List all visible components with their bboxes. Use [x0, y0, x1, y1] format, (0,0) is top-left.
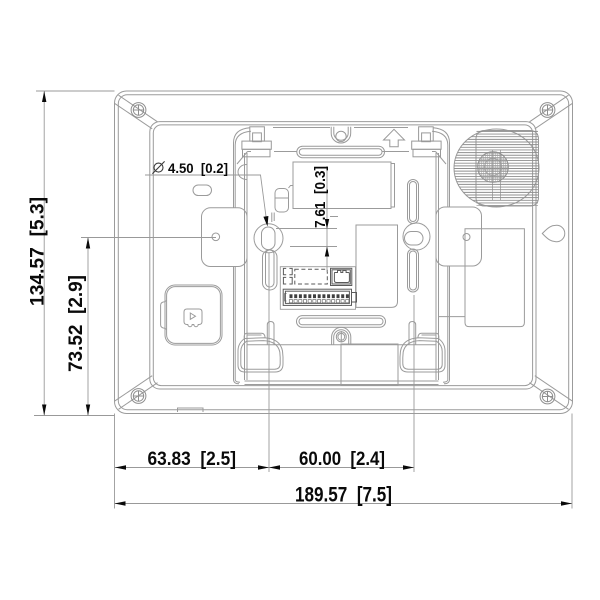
svg-text:189.57 [7.5]: 189.57 [7.5]	[295, 484, 392, 507]
svg-text:60.00 [2.4]: 60.00 [2.4]	[299, 449, 385, 470]
svg-text:63.83 [2.5]: 63.83 [2.5]	[148, 449, 237, 470]
svg-text:7.61 [0.3]: 7.61 [0.3]	[312, 166, 329, 228]
svg-text:134.57 [5.3]: 134.57 [5.3]	[28, 197, 49, 306]
svg-text:73.52 [2.9]: 73.52 [2.9]	[66, 275, 87, 372]
svg-text:4.50 [0.2]: 4.50 [0.2]	[168, 160, 228, 176]
